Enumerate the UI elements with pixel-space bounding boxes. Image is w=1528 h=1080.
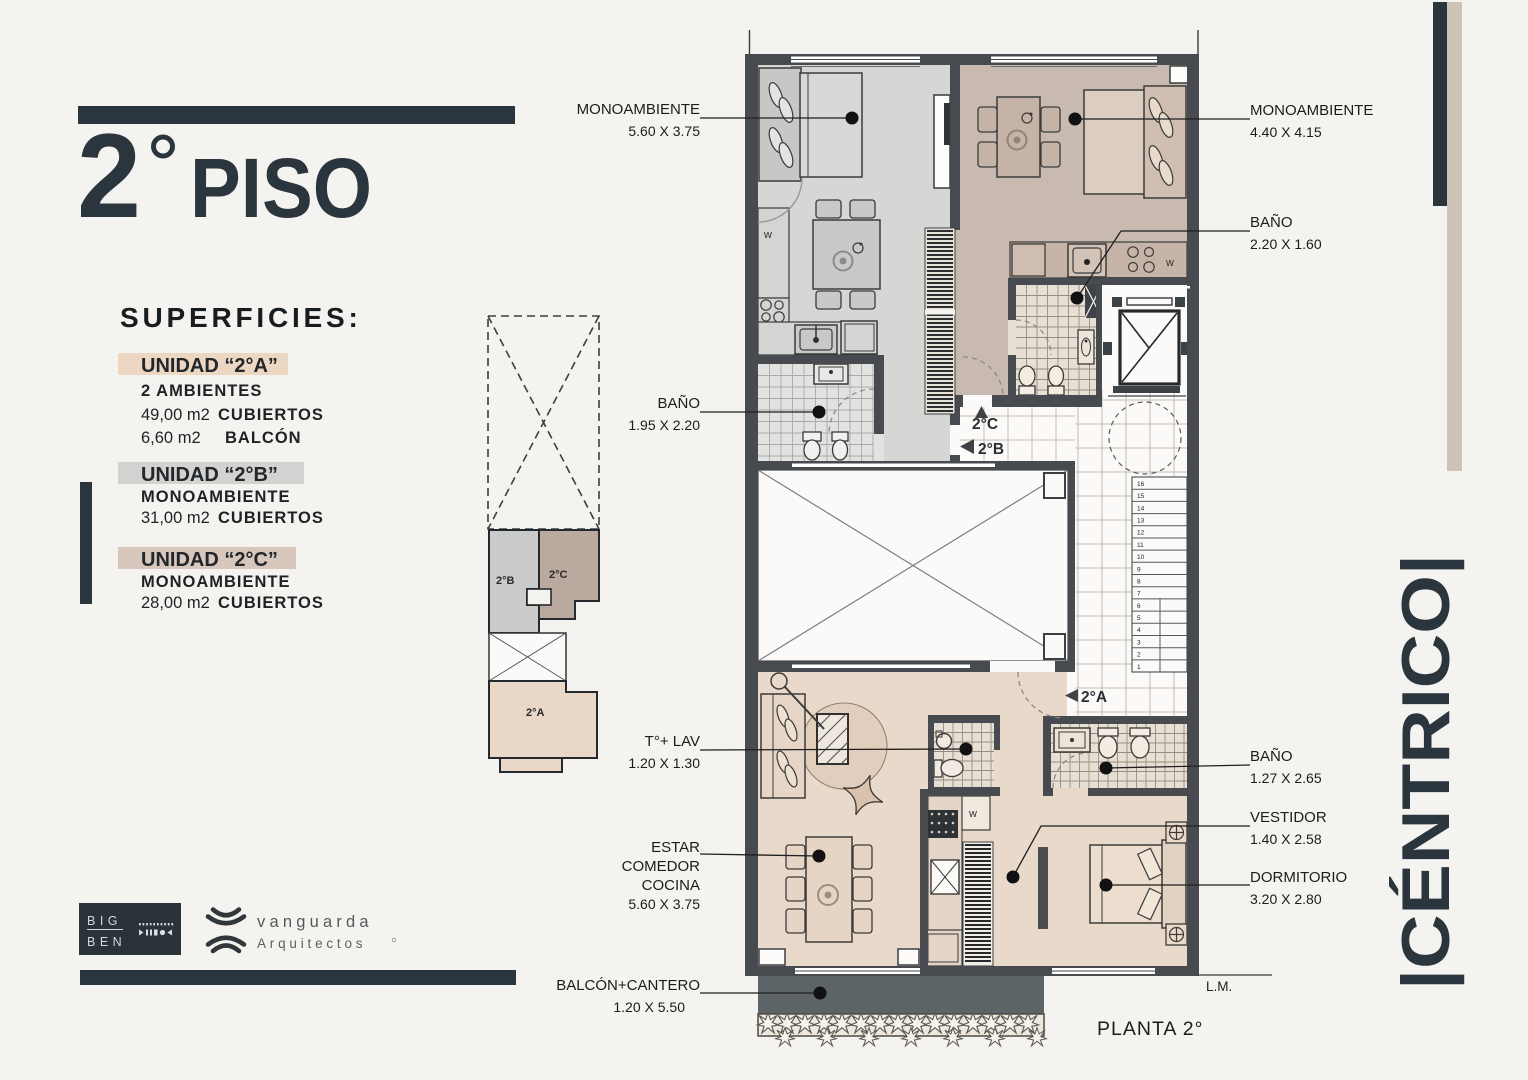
svg-text:Arquitectos: Arquitectos (257, 936, 366, 951)
svg-text:UNIDAD “2°B”: UNIDAD “2°B” (141, 464, 278, 486)
svg-text:1: 1 (1137, 664, 1141, 671)
svg-text:COCINA: COCINA (642, 877, 700, 894)
svg-text:w: w (968, 808, 977, 820)
svg-text:5: 5 (1137, 615, 1141, 622)
svg-text:ESTAR: ESTAR (651, 839, 700, 856)
svg-text:1.20 X 5.50: 1.20 X 5.50 (613, 999, 685, 1015)
svg-text:1.95 X 2.20: 1.95 X 2.20 (628, 417, 700, 433)
svg-text:COMEDOR: COMEDOR (622, 858, 701, 875)
svg-text:13: 13 (1137, 518, 1145, 525)
svg-text:1.40 X 2.58: 1.40 X 2.58 (1250, 831, 1322, 847)
svg-text:w: w (1165, 257, 1174, 269)
svg-text:BAÑO: BAÑO (1250, 214, 1293, 231)
svg-text:2°A: 2°A (526, 707, 545, 719)
svg-text:PLANTA 2°: PLANTA 2° (1097, 1018, 1203, 1040)
svg-text:BALCÓN+CANTERO: BALCÓN+CANTERO (556, 977, 700, 994)
svg-text:BALCÓN: BALCÓN (225, 428, 302, 447)
svg-text:UNIDAD “2°A”: UNIDAD “2°A” (141, 355, 278, 377)
svg-text:MONOAMBIENTE: MONOAMBIENTE (141, 573, 291, 591)
svg-text:2°B: 2°B (978, 441, 1004, 458)
svg-text:L.M.: L.M. (1206, 979, 1232, 994)
svg-text:2°C: 2°C (549, 569, 568, 581)
svg-text:CUBIERTOS: CUBIERTOS (218, 594, 324, 612)
svg-text:MONOAMBIENTE: MONOAMBIENTE (141, 488, 291, 506)
svg-text:11: 11 (1137, 542, 1144, 549)
svg-text:31,00 m2: 31,00 m2 (141, 509, 210, 527)
svg-text:14: 14 (1137, 505, 1145, 512)
svg-text:9: 9 (1137, 566, 1141, 573)
svg-text:VESTIDOR: VESTIDOR (1250, 809, 1327, 826)
svg-text:10: 10 (1137, 554, 1145, 561)
svg-text:CUBIERTOS: CUBIERTOS (218, 406, 324, 424)
svg-text:vanguarda: vanguarda (257, 913, 373, 931)
svg-text:6,60 m2: 6,60 m2 (141, 429, 201, 447)
svg-text:1.20 X 1.30: 1.20 X 1.30 (628, 755, 700, 771)
svg-text:BAÑO: BAÑO (1250, 748, 1293, 765)
svg-text:16: 16 (1137, 481, 1145, 488)
svg-text:BEN: BEN (87, 935, 126, 949)
svg-text:5.60 X 3.75: 5.60 X 3.75 (628, 123, 700, 139)
svg-text:2°C: 2°C (972, 416, 998, 433)
svg-text:SUPERFICIES:: SUPERFICIES: (120, 302, 362, 333)
svg-text:4: 4 (1137, 627, 1141, 634)
svg-text:DORMITORIO: DORMITORIO (1250, 869, 1347, 886)
svg-text:MONOAMBIENTE: MONOAMBIENTE (1250, 102, 1373, 119)
svg-text:BIG: BIG (87, 914, 122, 928)
svg-text:2 AMBIENTES: 2 AMBIENTES (141, 382, 262, 400)
svg-text:T°+ LAV: T°+ LAV (645, 733, 700, 750)
svg-text:2: 2 (1137, 652, 1141, 659)
svg-text:3.20 X 2.80: 3.20 X 2.80 (1250, 891, 1322, 907)
svg-text:3: 3 (1137, 639, 1141, 646)
svg-text:2°A: 2°A (1081, 689, 1107, 706)
svg-text:15: 15 (1137, 493, 1145, 500)
svg-text:12: 12 (1137, 530, 1145, 537)
svg-text:MONOAMBIENTE: MONOAMBIENTE (577, 101, 700, 118)
svg-text:7: 7 (1137, 591, 1141, 598)
svg-text:49,00 m2: 49,00 m2 (141, 406, 210, 424)
svg-text:1.27 X 2.65: 1.27 X 2.65 (1250, 770, 1322, 786)
svg-text:8: 8 (1137, 579, 1141, 586)
svg-text:6: 6 (1137, 603, 1141, 610)
svg-text:4.40 X 4.15: 4.40 X 4.15 (1250, 124, 1322, 140)
svg-text:28,00 m2: 28,00 m2 (141, 594, 210, 612)
svg-text:w: w (763, 229, 772, 241)
svg-text:|CÉNTRICO|: |CÉNTRICO| (1388, 554, 1465, 990)
svg-text:PISO: PISO (190, 141, 372, 235)
svg-text:5.60 X 3.75: 5.60 X 3.75 (628, 896, 700, 912)
svg-text:UNIDAD “2°C”: UNIDAD “2°C” (141, 549, 278, 571)
svg-text:2.20 X 1.60: 2.20 X 1.60 (1250, 236, 1322, 252)
svg-text:2°B: 2°B (496, 575, 515, 587)
svg-text:CUBIERTOS: CUBIERTOS (218, 509, 324, 527)
svg-text:BAÑO: BAÑO (657, 395, 700, 412)
svg-text:2: 2 (77, 109, 141, 243)
